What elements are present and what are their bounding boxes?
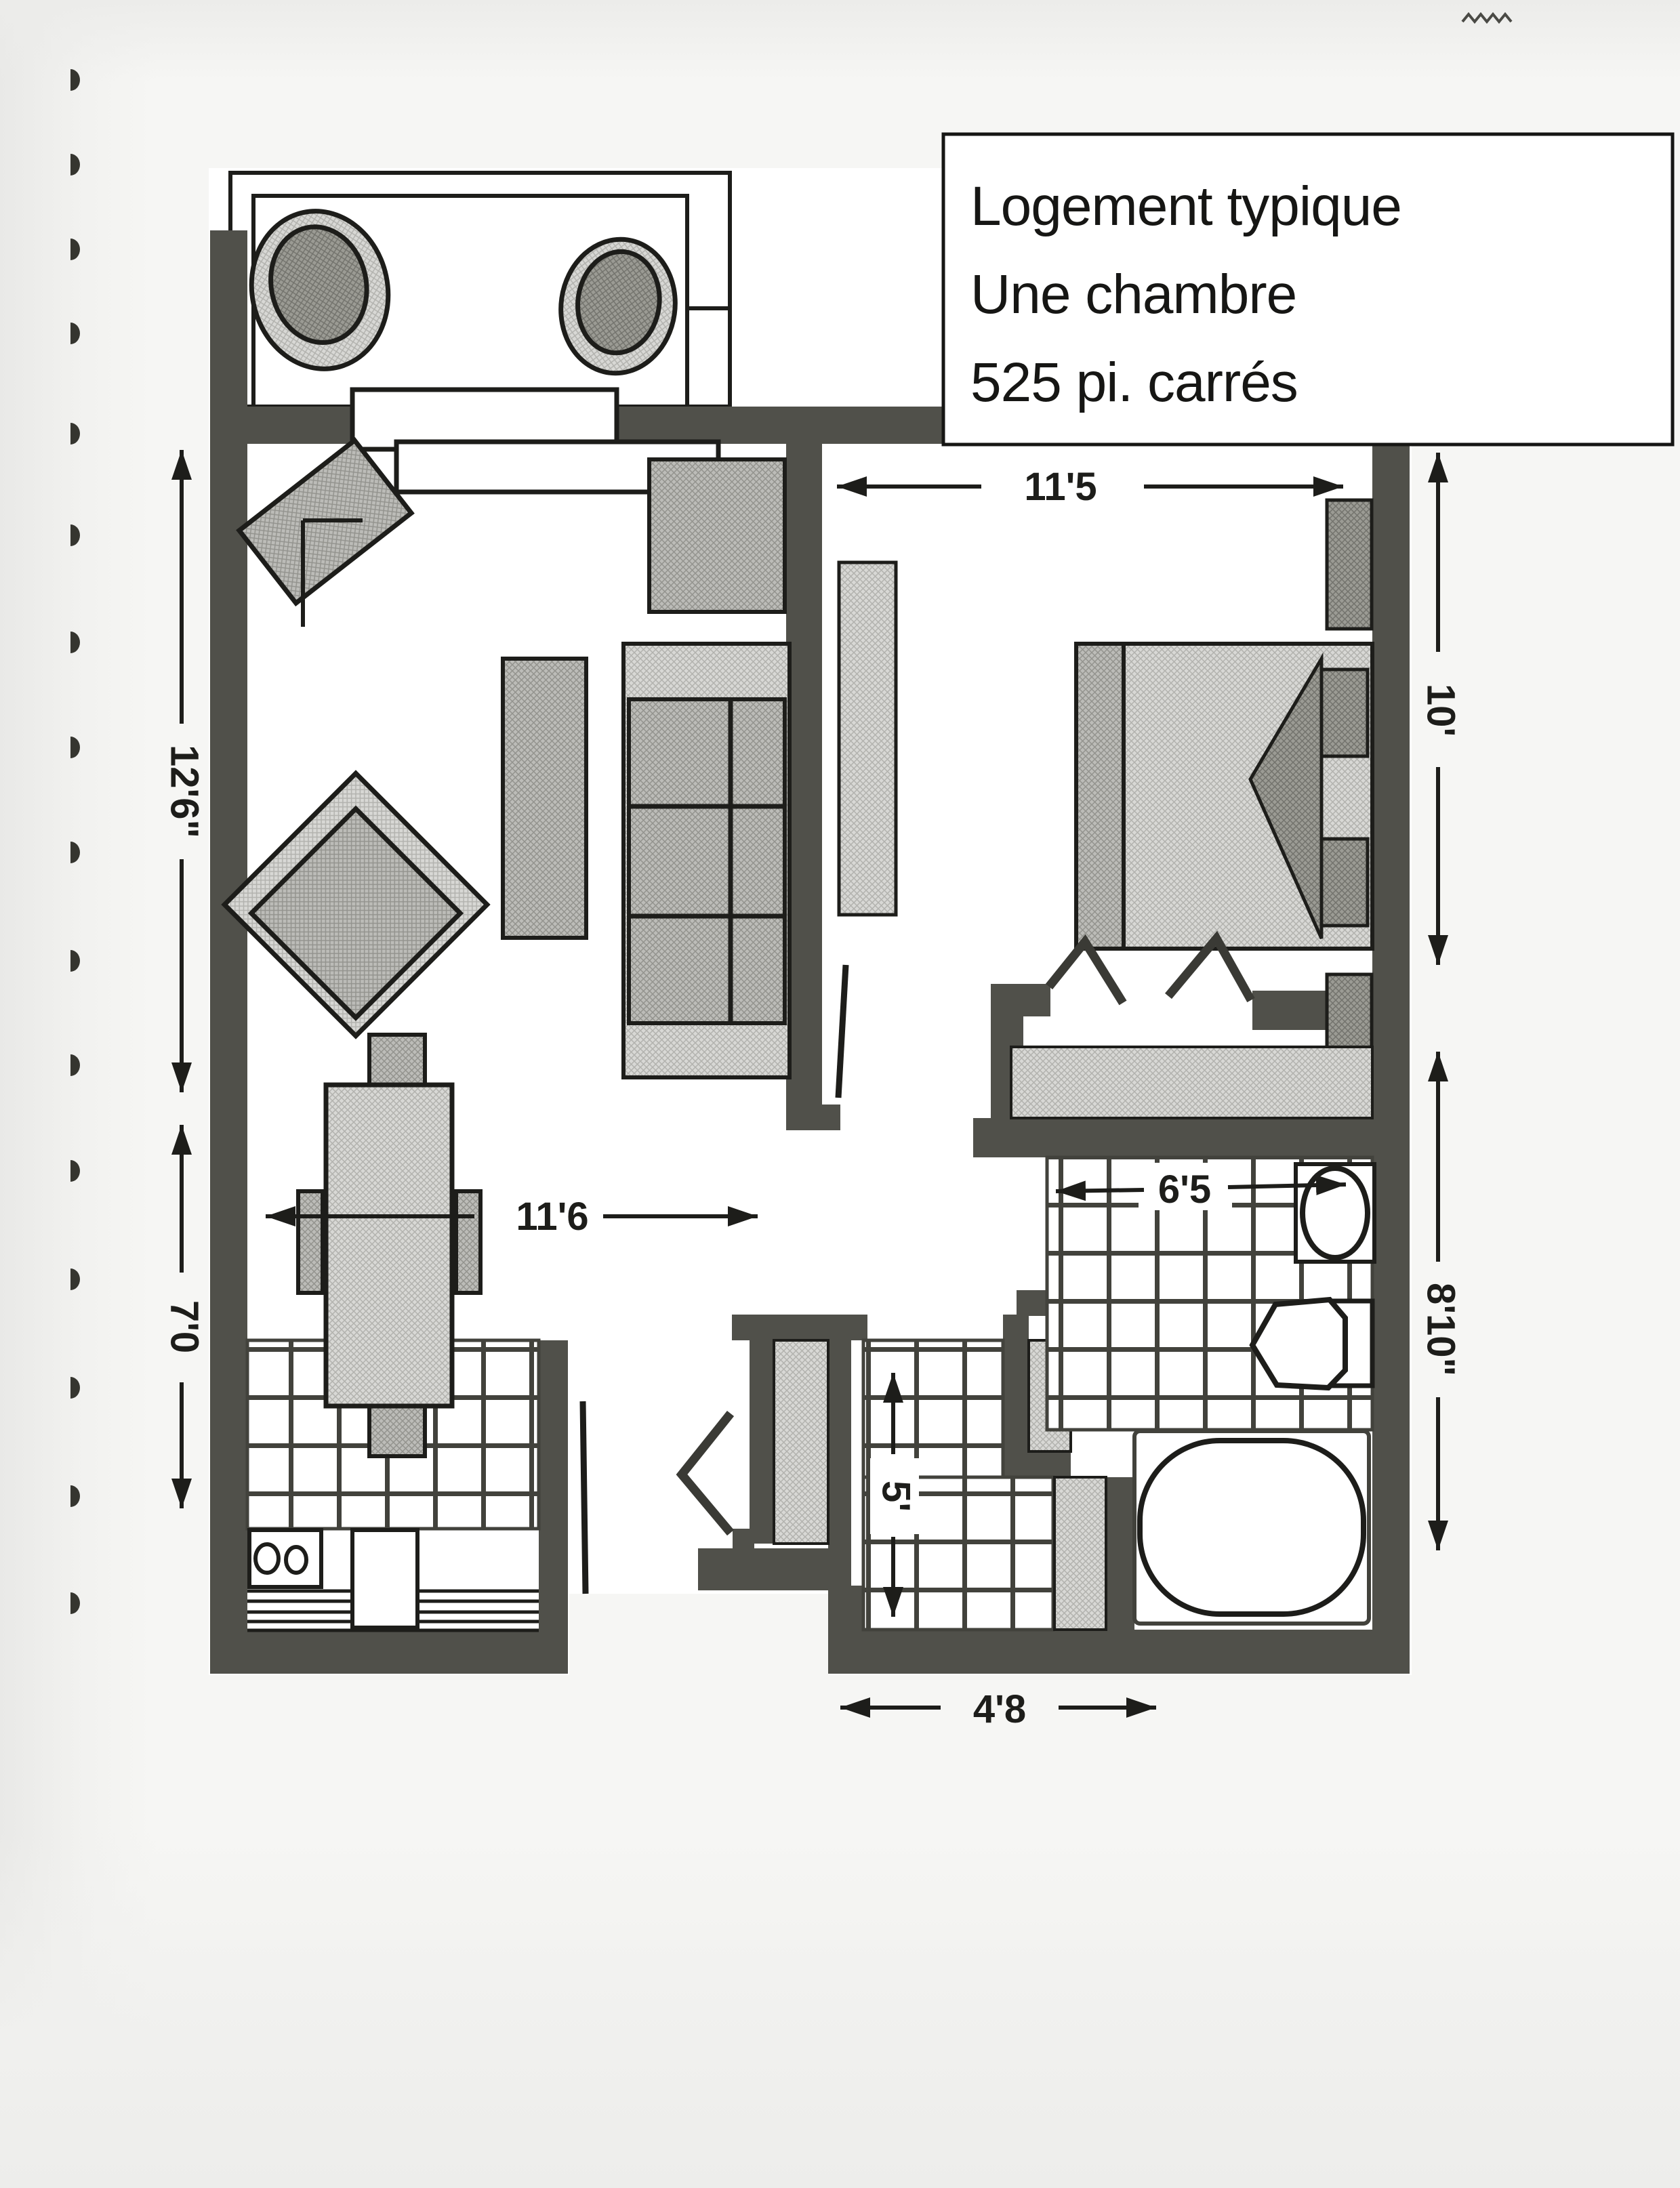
wall-bath-door-stub [1017, 1290, 1047, 1316]
closet-shelf [1011, 1047, 1372, 1118]
wall-bottom-entry-bath [828, 1630, 1410, 1674]
wall-coat-closet-left-right [828, 1340, 851, 1587]
wall-left-outer [210, 230, 247, 1674]
dim-label-bathroom-width: 6'5 [1158, 1168, 1211, 1212]
dim-arrow-bathroom-width-right [1228, 1184, 1346, 1187]
binder-hole-mark [70, 524, 80, 546]
binder-hole-mark [70, 950, 80, 972]
wall-closet-bathroom-divider [973, 1118, 1410, 1157]
binder-hole-mark [70, 1485, 80, 1507]
kitchen-sink-cabinet [352, 1530, 417, 1628]
bathtub [1140, 1441, 1364, 1614]
wall-bath-vanity-side [1106, 1477, 1134, 1632]
sofa [623, 644, 790, 1077]
bed-foot-band [1076, 644, 1124, 949]
binder-hole-mark [70, 632, 80, 653]
sink-basin [1303, 1168, 1368, 1258]
pedestal-sink [1296, 1164, 1374, 1262]
wall-bedroom-door-jamb [786, 1105, 840, 1130]
title-line-1: Logement typique [970, 176, 1401, 237]
floor-plan-svg: 12'6" 7'0 11'6 11'5 10' 6'5 8'10" 5' 4'8… [0, 0, 1680, 2188]
binder-hole-mark [70, 69, 80, 91]
coffee-table [503, 659, 586, 938]
entry-door-leaf [583, 1401, 586, 1594]
dim-label-bathroom-height: 8'10" [1419, 1283, 1463, 1376]
wall-coat-closet-right-cap [1029, 1451, 1071, 1477]
dining-table [326, 1085, 452, 1406]
wall-entry-threshold [698, 1548, 828, 1590]
scan-squiggle-mark [1462, 14, 1511, 22]
dresser [839, 562, 896, 915]
binder-hole-mark [70, 423, 80, 445]
binder-hole-mark [70, 239, 80, 260]
binder-hole-mark [70, 1160, 80, 1182]
dim-label-entry-width: 4'8 [973, 1687, 1026, 1731]
binder-hole-mark [70, 1377, 80, 1399]
dim-label-bedroom-height: 10' [1419, 684, 1463, 737]
dining-chair-bottom [369, 1406, 425, 1456]
dim-label-kitchen-height: 7'0 [163, 1300, 207, 1353]
dim-label-bedroom-width: 11'5 [1024, 465, 1097, 509]
dim-label-living-height: 12'6" [163, 745, 207, 838]
sofa-cushions [629, 699, 785, 1023]
bed-pillow [1322, 669, 1368, 756]
wall-closet-left-stub [991, 984, 1050, 1016]
binder-hole-mark [70, 1054, 80, 1076]
toilet [1252, 1300, 1372, 1388]
bed-pillow [1322, 839, 1368, 926]
wall-hall-cap [732, 1315, 867, 1340]
binder-hole-mark [70, 1592, 80, 1614]
wall-coat-closet-left-side [750, 1340, 774, 1544]
tv-console [649, 459, 785, 612]
bathroom [1047, 1157, 1374, 1630]
hall-tile-floor [863, 1340, 1003, 1477]
dining-set [298, 1035, 480, 1456]
stove-burner [286, 1547, 306, 1573]
exterior-entry-notch [569, 1594, 828, 1675]
binder-hole-mark [70, 842, 80, 863]
binder-marks [70, 69, 80, 1614]
dim-label-entry-height: 5' [874, 1481, 918, 1512]
title-line-2: Une chambre [970, 264, 1296, 325]
binder-hole-mark [70, 1268, 80, 1290]
wall-kitchen-right [539, 1340, 568, 1672]
dining-chair-right [456, 1191, 480, 1293]
dining-chair-top [369, 1035, 425, 1085]
nightstand-top [1327, 500, 1372, 629]
binder-hole-mark [70, 737, 80, 758]
dining-chair-left [298, 1191, 323, 1293]
wall-entry-step [828, 1586, 863, 1633]
coat-closet-left-interior [774, 1340, 828, 1544]
title-box: Logement typique Une chambre 525 pi. car… [943, 134, 1673, 445]
stove-burner [255, 1544, 279, 1573]
bed [1076, 644, 1372, 949]
dim-label-living-width: 11'6 [516, 1195, 588, 1239]
binder-hole-mark [70, 323, 80, 344]
wall-bottom-kitchen [210, 1630, 568, 1674]
wall-hall-bath-divider [1003, 1315, 1029, 1477]
binder-hole-mark [70, 154, 80, 176]
title-line-3: 525 pi. carrés [970, 352, 1298, 413]
wall-right-outer [1372, 407, 1410, 1674]
bathroom-vanity-strip [1054, 1477, 1106, 1630]
dim-arrow-bathroom-width-left [1056, 1190, 1144, 1191]
